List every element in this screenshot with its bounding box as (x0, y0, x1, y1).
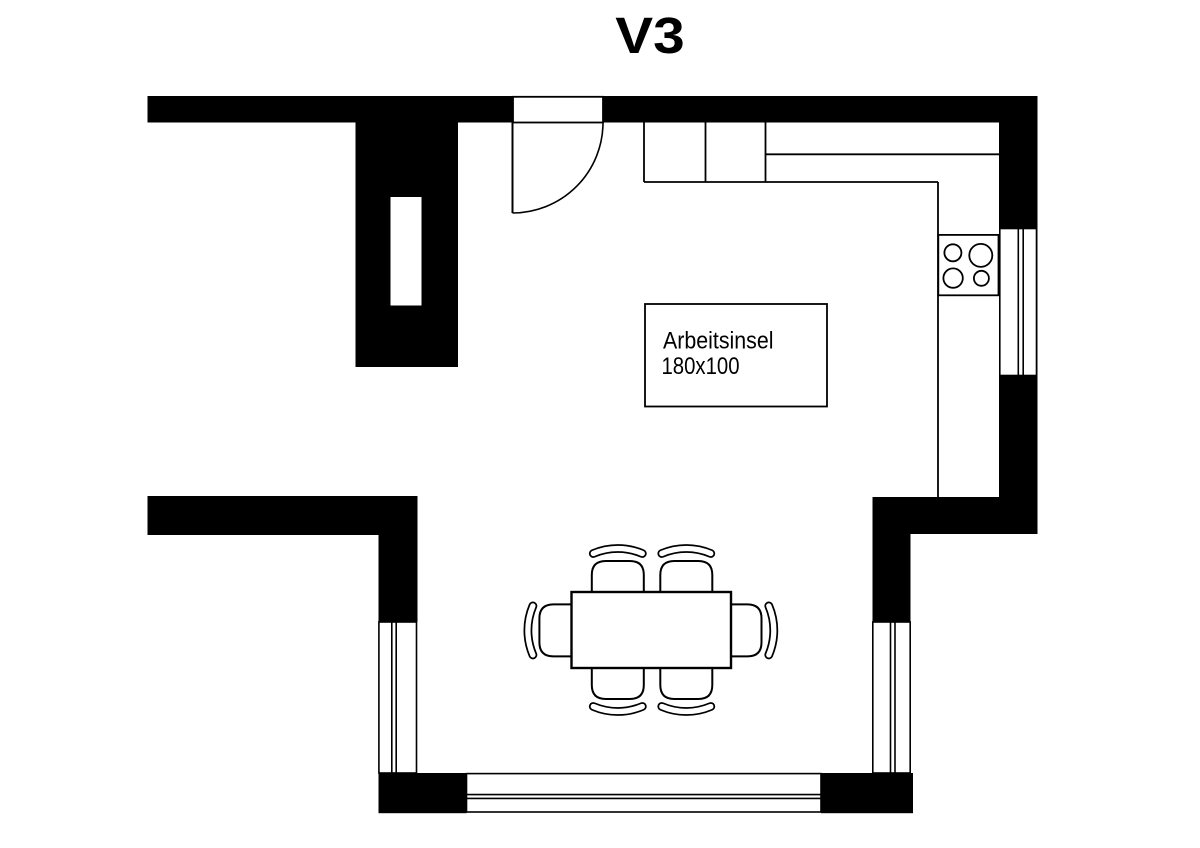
svg-text:Arbeitsinsel: Arbeitsinsel (663, 328, 774, 355)
svg-text:180x100: 180x100 (662, 353, 740, 380)
svg-text:V3: V3 (615, 7, 684, 64)
